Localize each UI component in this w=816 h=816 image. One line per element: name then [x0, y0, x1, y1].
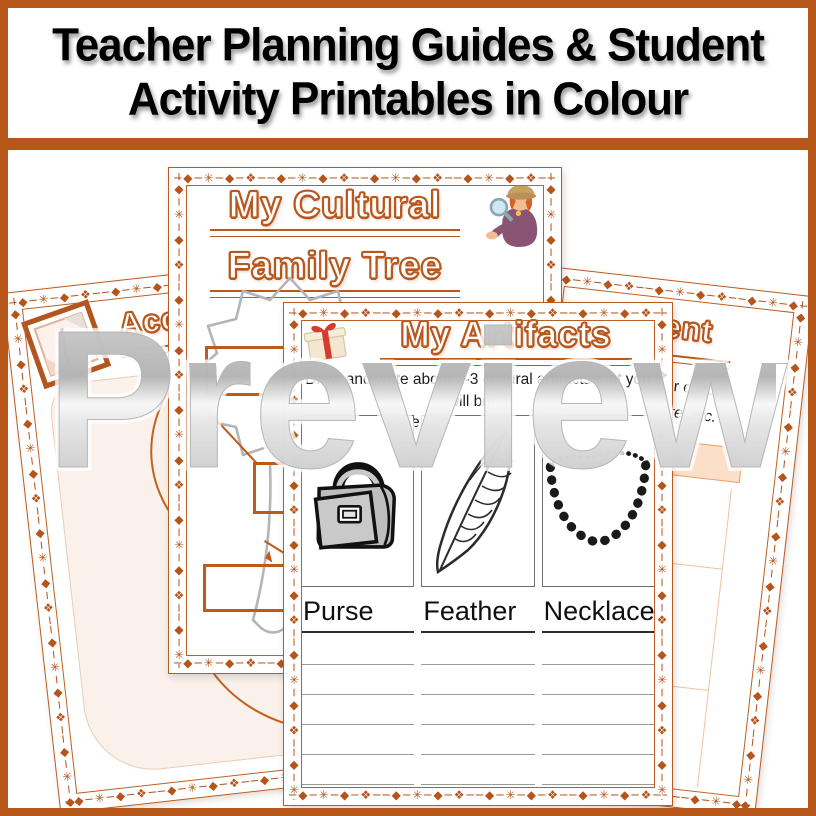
banner-line-2: Activity Printables in Colour	[128, 75, 688, 126]
writing-line	[421, 785, 534, 806]
writing-line	[301, 665, 414, 695]
artifact-box-feather	[421, 415, 534, 587]
artifact-box-purse	[301, 415, 414, 587]
writing-line	[542, 665, 655, 695]
artifact-label-necklace: Necklace	[542, 591, 655, 633]
writing-line	[301, 635, 414, 665]
writing-lines-column	[301, 635, 414, 806]
worksheet-artifacts: ─◆─✳─◆─❖──◆─✳─◆─❖──◆─✳─◆─❖──◆─✳─◆─❖──◆─✳…	[283, 302, 673, 806]
preview-area: ─◆─✳─◆─❖──◆─✳─◆─❖──◆─✳─◆─❖──◆─✳─◆─❖──◆─✳…	[8, 150, 808, 808]
title-banner: Teacher Planning Guides & Student Activi…	[8, 8, 808, 138]
artifacts-instructions-line-1: Draw and write about 2-3 cultural artifa…	[305, 371, 650, 410]
artifacts-title: My Artifacts	[354, 315, 658, 355]
detective-magnifier-icon	[483, 180, 545, 252]
ornament-border: ─◆─✳─◆─❖──◆─✳─◆─❖──◆─✳─◆─❖──◆─✳─◆─❖──◆─✳…	[287, 308, 301, 800]
feather-drawing	[428, 422, 528, 580]
writing-line	[301, 755, 414, 785]
family-tree-title-line-1: My Cultural	[169, 184, 501, 226]
title-underline	[210, 229, 460, 237]
purse-drawing	[305, 441, 411, 561]
artifact-box-necklace	[542, 415, 655, 587]
writing-line	[542, 755, 655, 785]
writing-line	[421, 755, 534, 785]
necklace-drawing	[543, 438, 653, 564]
writing-lines-column	[542, 635, 655, 806]
writing-line	[421, 725, 534, 755]
title-underline	[380, 358, 632, 366]
writing-line	[421, 635, 534, 665]
writing-line	[301, 785, 414, 806]
writing-line	[542, 785, 655, 806]
artifact-label-purse: Purse	[301, 591, 414, 633]
artifact-label-feather: Feather	[421, 591, 534, 633]
writing-line	[301, 695, 414, 725]
writing-line	[542, 635, 655, 665]
writing-line	[542, 695, 655, 725]
promo-image-root: Teacher Planning Guides & Student Activi…	[0, 0, 816, 816]
banner-line-1: Teacher Planning Guides & Student	[52, 20, 764, 71]
writing-line	[542, 725, 655, 755]
writing-line	[421, 695, 534, 725]
writing-lines-column	[421, 635, 534, 806]
ornament-border: ─◆─✳─◆─❖──◆─✳─◆─❖──◆─✳─◆─❖──◆─✳─◆─❖──◆─✳…	[655, 308, 669, 800]
writing-line	[301, 725, 414, 755]
ornament-border: ─◆─✳─◆─❖──◆─✳─◆─❖──◆─✳─◆─❖──◆─✳─◆─❖──◆─✳…	[738, 300, 808, 808]
writing-line	[421, 665, 534, 695]
gift-icon	[299, 316, 354, 369]
